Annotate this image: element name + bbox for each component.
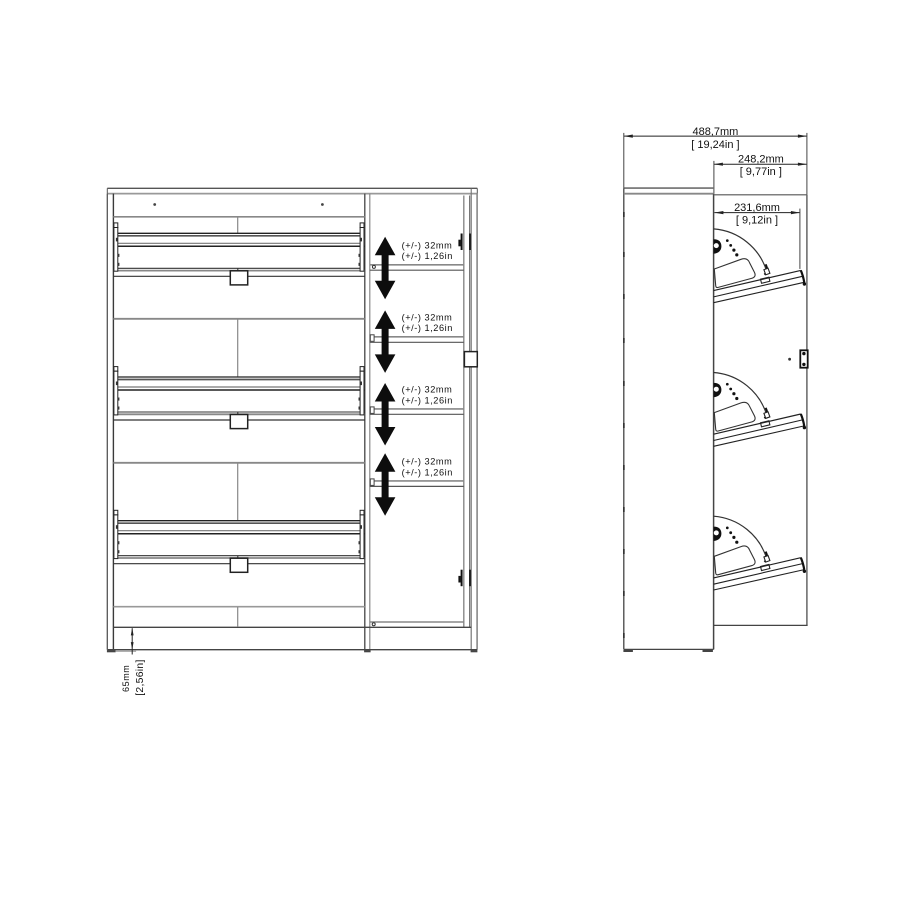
svg-text:(+/-) 1,26in: (+/-) 1,26in [402, 323, 453, 333]
svg-text:65mm: 65mm [121, 665, 131, 692]
svg-text:[ 9,12in ]: [ 9,12in ] [736, 214, 778, 226]
svg-text:248,2mm: 248,2mm [738, 153, 784, 165]
svg-text:(+/-) 32mm: (+/-) 32mm [402, 313, 453, 323]
svg-text:(+/-) 1,26in: (+/-) 1,26in [402, 395, 453, 405]
svg-text:[2,56in]: [2,56in] [135, 659, 146, 695]
svg-text:(+/-) 32mm: (+/-) 32mm [402, 385, 453, 395]
svg-text:231,6mm: 231,6mm [734, 202, 780, 214]
svg-text:[ 19,24in ]: [ 19,24in ] [691, 139, 739, 151]
svg-text:(+/-) 32mm: (+/-) 32mm [402, 457, 453, 467]
svg-text:(+/-) 1,26in: (+/-) 1,26in [402, 467, 453, 477]
svg-text:(+/-) 1,26in: (+/-) 1,26in [402, 251, 453, 261]
svg-text:[ 9,77in ]: [ 9,77in ] [740, 166, 782, 178]
svg-text:(+/-) 32mm: (+/-) 32mm [402, 240, 453, 250]
